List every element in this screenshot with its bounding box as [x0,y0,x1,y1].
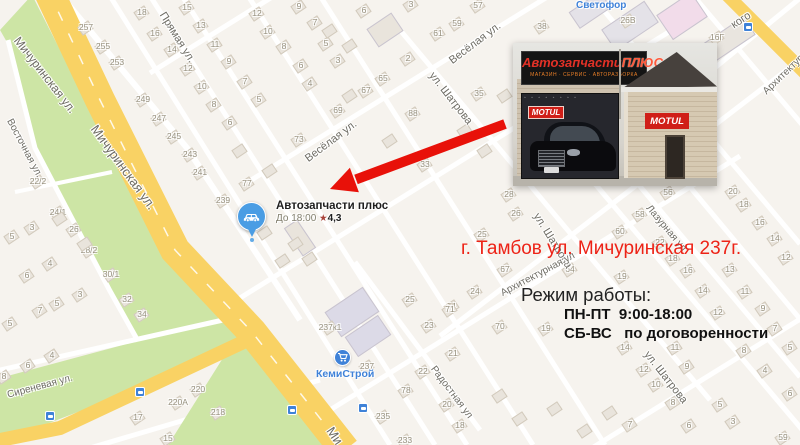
building-number: 16 [150,28,159,38]
building-number: 18 [455,420,464,430]
place-marker-auto-parts[interactable] [237,202,267,242]
building-number: 218 [211,407,225,417]
building-number: 7 [38,305,43,315]
marker-pin-circle [237,202,266,231]
building-number: 5 [718,399,723,409]
building-number: 5 [8,318,13,328]
building-number: 71 [445,304,454,314]
marker-hours: До 18:00 [276,213,316,224]
building-number: 233 [398,435,412,445]
building-number: 19 [617,271,626,281]
building-number: 11 [741,286,750,296]
building-number: 7 [243,76,248,86]
building-number: 5 [55,298,60,308]
building-number: 9 [297,1,302,11]
marker-subtitle: До 18:00 ★4,3 [276,213,388,224]
marker-ground-dot [250,238,254,242]
schedule-weekdays: ПН-ПТ 9:00-18:00 [564,306,692,323]
building-number: 6 [228,117,233,127]
storefront-photo: АвтозапчастиПЛЮС МАГАЗИН · СЕРВИС · АВТО… [513,43,717,186]
building-number: 38 [537,21,546,31]
bus-stop-icon[interactable] [287,405,297,415]
building-number: 67 [361,85,370,95]
building-number: 21 [448,348,457,358]
motul-sign-wall: MOTUL [645,113,689,129]
building-number: 35 [474,88,483,98]
building-number: 20 [728,186,737,196]
building-number: 9 [227,56,232,66]
building-number: 241 [193,167,207,177]
building-number: 6 [26,360,31,370]
building-number: 8 [212,99,217,109]
building-number: 2 [406,53,411,63]
building-number: 11 [671,342,680,352]
building-number: 253 [110,57,124,67]
bus-stop-icon[interactable] [743,22,753,32]
photo-pole [619,49,621,119]
building-number: 243 [183,149,197,159]
building-number: 88 [408,108,417,118]
building-number: 237к1 [319,322,342,332]
building-number: 220А [168,397,188,407]
building-number: 12 [252,8,261,18]
building-number: 12 [639,364,648,374]
building-number: 15 [163,433,172,443]
poi-label-svetofor[interactable]: Светофор [576,0,626,11]
building-number: 7 [313,17,318,27]
schedule-weekend: СБ-ВС по договоренности [564,325,768,342]
marker-rating: 4,3 [328,213,342,224]
building-number: 57 [473,0,482,10]
building-number: 61 [433,28,442,38]
building-number: 12 [713,307,722,317]
rating-star-icon: ★ [319,213,328,224]
building-number: 13 [196,20,205,30]
building-number: 18 [137,7,146,17]
building-number: 3 [30,222,35,232]
building-number: 24 [470,286,479,296]
building-number: 33 [420,159,429,169]
photo-store-sign: АвтозапчастиПЛЮС МАГАЗИН · СЕРВИС · АВТО… [521,51,647,85]
building-number: 4 [50,350,55,360]
building-number: 6 [299,60,304,70]
building-number: 6 [687,420,692,430]
building-number: 12 [781,252,790,262]
building-number: 247 [152,113,166,123]
building-number: 239 [216,195,230,205]
building-number: 56 [663,187,672,197]
photo-house-door [665,135,685,179]
bus-stop-icon[interactable] [135,387,145,397]
building-number: 9 [685,361,690,371]
photo-brand-logos-row: ◦ ◦ ◦ ◦ ◦ ◦ ◦ ◦ [524,95,616,102]
building-number: 32 [122,294,131,304]
building-number: 16Г [710,32,724,42]
building-number: 23 [424,320,433,330]
building-number: 255 [96,41,110,51]
building-number: 16 [755,217,764,227]
poi-label-kemistroy[interactable]: КемиСтрой [316,368,374,380]
building-number: 3 [78,289,83,299]
building-number: 77 [242,178,251,188]
building-number: 4 [308,78,313,88]
building-number: 6 [362,5,367,15]
building-number: 249 [136,94,150,104]
building-number: 5 [324,38,329,48]
building-number: 11 [211,39,220,49]
building-number: 13 [725,264,734,274]
building-number: 6 [788,388,793,398]
building-number: 19 [541,323,550,333]
building-number: 10 [197,81,206,91]
building-number: 17 [133,412,142,422]
bus-stop-icon[interactable] [358,403,368,413]
building-number: 7 [773,323,778,333]
photo-sign-title: АвтозапчастиПЛЮС [522,55,646,70]
building-number: 14 [770,233,779,243]
building-number: 5 [257,94,262,104]
shopping-cart-icon[interactable] [334,349,351,366]
photo-sign-subtitle: МАГАЗИН · СЕРВИС · АВТОРАЗБОРКА [522,72,646,78]
building-number: 10 [263,26,272,36]
building-number: 59 [778,432,787,442]
building-number: 5 [788,342,793,352]
building-number: 15 [182,2,191,12]
building-number: 235 [376,411,390,421]
building-number: 5 [10,231,15,241]
building-number: 25 [405,294,414,304]
building-number: 73 [294,134,303,144]
building-number: 70 [495,321,504,331]
building-number: 14 [698,285,707,295]
schedule-title: Режим работы: [521,284,651,306]
building-number: 14 [620,342,629,352]
building-number: 3 [731,416,736,426]
building-number: 26 [69,224,78,234]
map-viewport[interactable]: 534622/224/12628/230/1575332344681715220… [0,0,800,445]
building-number: 3 [409,0,414,9]
address-text: г. Тамбов ул. Мичуринская 237г. [461,238,741,260]
car-image [530,122,618,178]
building-number: 78 [401,385,410,395]
building-number: 59 [452,18,461,28]
cart-glyph [337,352,348,363]
motul-logo-banner: MOTUL [528,106,564,119]
building-number: 4 [763,365,768,375]
bus-stop-icon[interactable] [45,411,55,421]
photo-ad-banner: ◦ ◦ ◦ ◦ ◦ ◦ ◦ ◦ MOTUL [521,93,619,179]
building-number: 26В [620,15,635,25]
building-number: 220 [191,384,205,394]
building-number: 22 [418,366,427,376]
building-number: 8 [742,345,747,355]
building-number: 69 [333,105,342,115]
marker-label[interactable]: Автозапчасти плюс До 18:00 ★4,3 [276,200,388,224]
marker-pin-tail [248,229,256,237]
marker-title: Автозапчасти плюс [276,200,388,212]
building-number: 257 [79,22,93,32]
building-number: 9 [761,303,766,313]
car-icon [243,211,260,222]
building-number: 18 [739,199,748,209]
building-number: 28 [504,189,513,199]
building-number: 6 [25,270,30,280]
building-number: 3 [336,55,341,65]
building-number: 60 [615,226,624,236]
building-number: 7 [628,419,633,429]
building-number: 65 [378,73,387,83]
building-number: 12 [183,63,192,73]
building-number: 4 [48,258,53,268]
building-number: 8 [282,41,287,51]
building-number: 67 [500,264,509,274]
building-number: 34 [137,309,146,319]
building-number: 30/1 [103,269,120,279]
building-number: 8 [2,371,7,381]
building-number: 245 [167,131,181,141]
building-number: 16 [683,265,692,275]
building-number: 26 [511,208,520,218]
building-number: 10 [651,379,660,389]
